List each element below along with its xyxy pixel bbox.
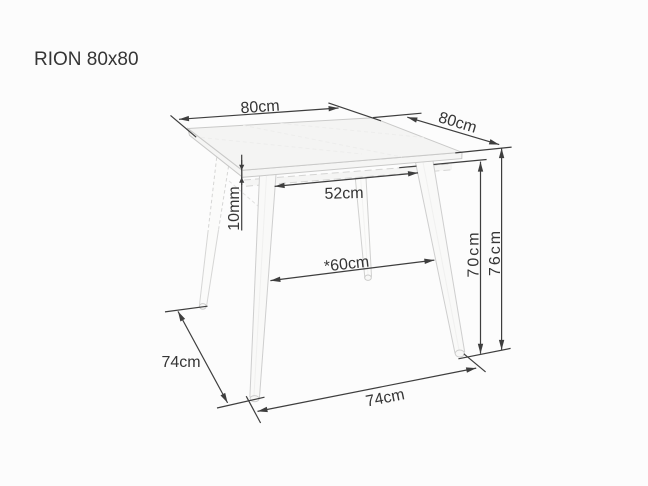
svg-text:*60cm: *60cm <box>323 254 370 276</box>
svg-text:80cm: 80cm <box>240 98 280 118</box>
svg-text:52cm: 52cm <box>324 185 364 203</box>
svg-text:10mm: 10mm <box>226 186 243 230</box>
svg-text:74cm: 74cm <box>161 354 200 371</box>
svg-text:RION 80x80: RION 80x80 <box>34 49 139 70</box>
svg-text:74cm: 74cm <box>364 386 406 410</box>
svg-text:76cm: 76cm <box>487 229 504 276</box>
svg-text:70cm: 70cm <box>465 230 482 277</box>
